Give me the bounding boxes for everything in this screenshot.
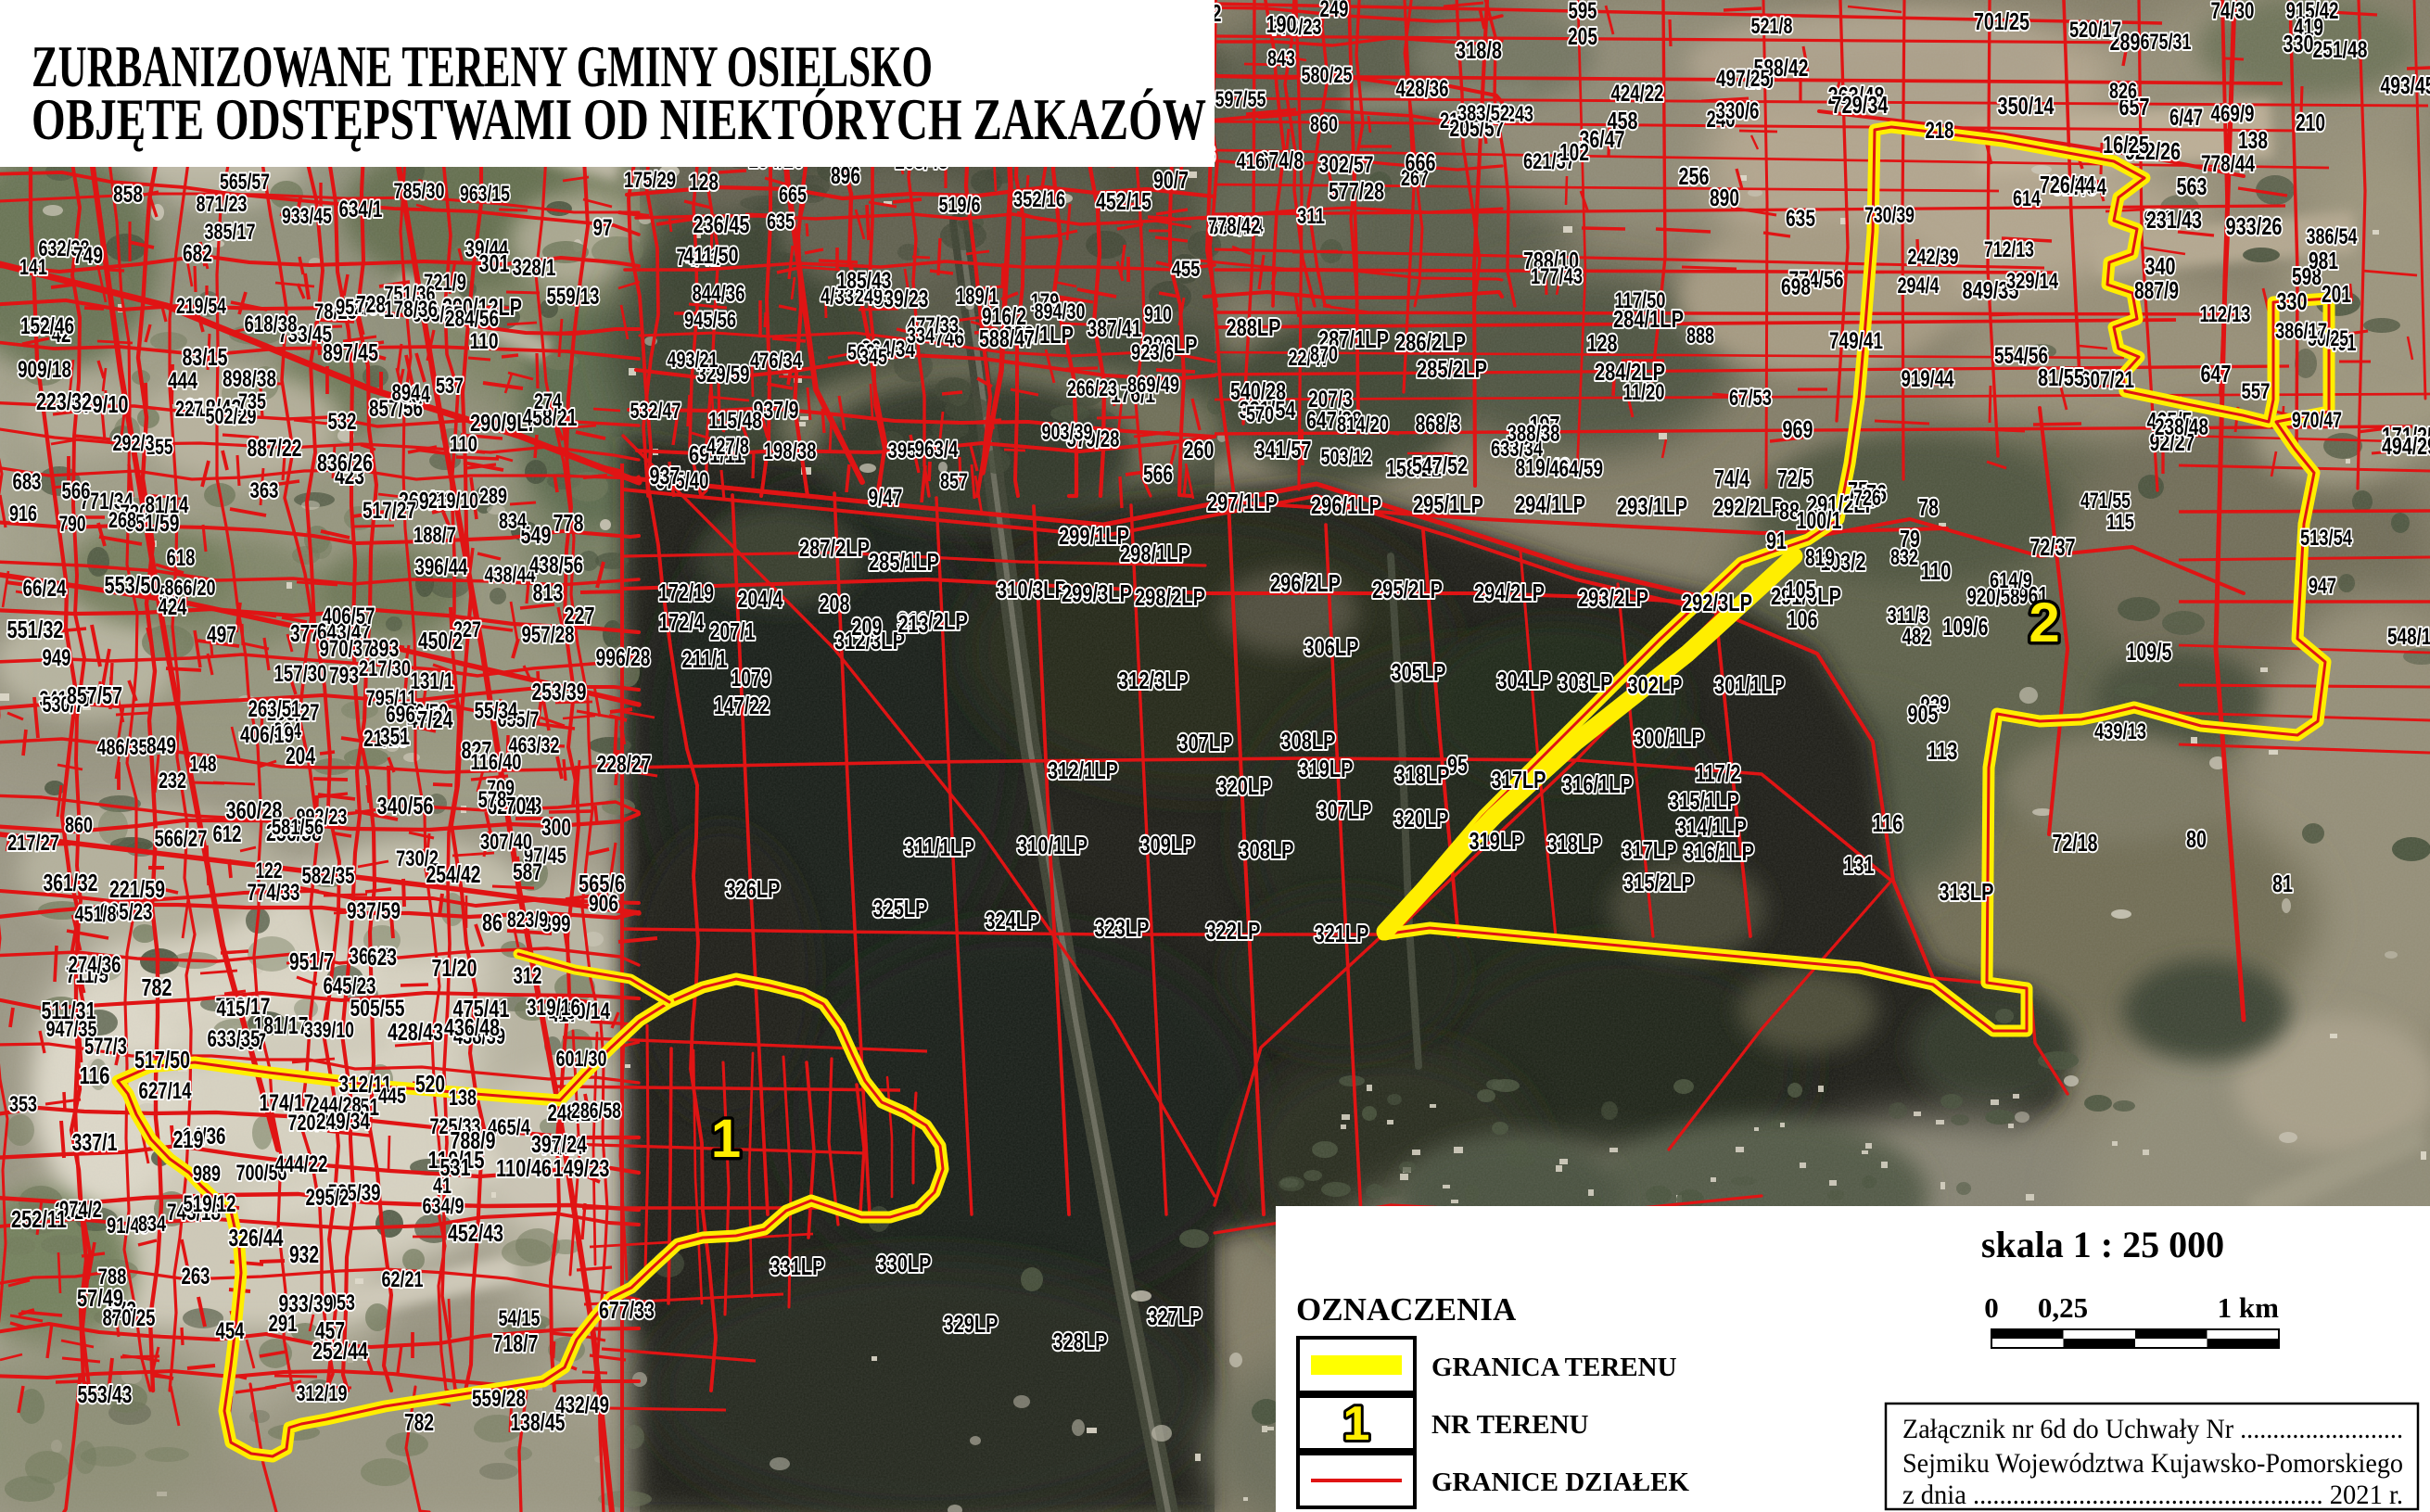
svg-text:565/6: 565/6: [579, 870, 625, 897]
svg-text:NR TERENU: NR TERENU: [1431, 1410, 1589, 1440]
svg-text:301: 301: [479, 249, 510, 277]
svg-text:718/7: 718/7: [493, 1329, 539, 1357]
svg-text:288LP: 288LP: [1227, 313, 1281, 341]
svg-text:557: 557: [2242, 379, 2271, 404]
svg-text:227: 227: [565, 602, 595, 629]
svg-text:1: 1: [711, 1109, 741, 1169]
svg-text:266/23: 266/23: [1067, 376, 1117, 401]
svg-text:97: 97: [593, 215, 613, 241]
svg-text:826: 826: [2109, 79, 2137, 104]
svg-text:128: 128: [689, 170, 719, 196]
svg-text:311/3: 311/3: [1888, 604, 1929, 629]
svg-text:647: 647: [2201, 360, 2232, 388]
svg-text:232: 232: [159, 769, 186, 794]
svg-text:340/56: 340/56: [377, 792, 434, 820]
svg-text:213: 213: [898, 610, 929, 638]
svg-text:618: 618: [167, 545, 196, 571]
svg-text:318LP: 318LP: [1395, 761, 1450, 789]
svg-text:188/7: 188/7: [413, 523, 456, 548]
svg-text:388/38: 388/38: [1508, 421, 1560, 447]
svg-text:311: 311: [1297, 204, 1325, 229]
svg-text:231/43: 231/43: [2146, 206, 2202, 234]
svg-text:819: 819: [1805, 543, 1835, 571]
svg-text:451/8: 451/8: [75, 902, 117, 927]
svg-text:778/44: 778/44: [2201, 151, 2255, 177]
svg-text:251/48: 251/48: [2313, 37, 2368, 63]
svg-text:289: 289: [479, 484, 507, 509]
svg-text:919/44: 919/44: [1902, 366, 1954, 392]
svg-text:305LP: 305LP: [1392, 658, 1446, 686]
svg-text:377: 377: [290, 619, 320, 647]
svg-text:726: 726: [1853, 486, 1881, 511]
svg-text:712/13: 712/13: [1984, 237, 2034, 262]
svg-text:115: 115: [2106, 510, 2134, 535]
svg-text:254/42: 254/42: [426, 860, 481, 888]
svg-text:860: 860: [1310, 112, 1338, 137]
svg-text:351: 351: [380, 722, 410, 750]
svg-text:704: 704: [506, 792, 537, 820]
svg-text:223/32: 223/32: [36, 388, 92, 415]
svg-text:217/27: 217/27: [7, 831, 59, 856]
svg-text:310/3LP: 310/3LP: [997, 576, 1067, 604]
svg-text:198/38: 198/38: [764, 438, 817, 464]
svg-text:0,25: 0,25: [2038, 1291, 2088, 1324]
svg-text:521/8: 521/8: [1751, 14, 1793, 39]
svg-text:291: 291: [269, 1311, 298, 1337]
svg-text:253/39: 253/39: [532, 678, 587, 705]
svg-text:476/34: 476/34: [750, 349, 802, 374]
svg-text:458: 458: [1608, 107, 1638, 134]
svg-text:105: 105: [1786, 576, 1816, 604]
svg-text:190: 190: [1266, 10, 1297, 38]
svg-text:260: 260: [1184, 436, 1215, 464]
svg-text:383/52: 383/52: [1457, 101, 1509, 126]
svg-text:813: 813: [533, 578, 564, 606]
svg-text:210: 210: [2296, 108, 2325, 136]
svg-text:6/47: 6/47: [2169, 105, 2203, 131]
svg-text:386/17: 386/17: [2275, 319, 2327, 344]
svg-text:312: 312: [514, 963, 542, 989]
svg-text:869/49: 869/49: [1127, 373, 1179, 398]
svg-text:110: 110: [450, 432, 477, 457]
svg-text:438/56: 438/56: [529, 553, 583, 578]
svg-text:428/36: 428/36: [1396, 76, 1449, 102]
svg-text:627/14: 627/14: [139, 1078, 192, 1104]
svg-text:157/30: 157/30: [274, 661, 327, 687]
svg-text:857/57: 857/57: [67, 681, 122, 709]
svg-text:566: 566: [62, 478, 91, 504]
svg-text:315/1LP: 315/1LP: [1669, 787, 1739, 815]
svg-text:319/16: 319/16: [527, 995, 580, 1021]
svg-text:201: 201: [2322, 280, 2351, 308]
svg-text:2: 2: [2029, 591, 2059, 654]
svg-text:67/53: 67/53: [1729, 386, 1772, 411]
svg-text:452/15: 452/15: [1096, 187, 1151, 215]
svg-text:497/25: 497/25: [1716, 66, 1770, 92]
svg-text:581/56: 581/56: [272, 815, 324, 840]
svg-text:Załącznik nr 6d do Uchwały Nr: Załącznik nr 6d do Uchwały Nr ..........…: [1902, 1414, 2403, 1444]
svg-text:493/45: 493/45: [2381, 71, 2430, 99]
svg-text:307LP: 307LP: [1178, 729, 1233, 756]
svg-text:832: 832: [1890, 545, 1918, 570]
svg-text:350/14: 350/14: [1998, 92, 2055, 120]
svg-text:860: 860: [65, 813, 93, 838]
svg-text:330/6: 330/6: [1716, 98, 1760, 124]
svg-text:406/19: 406/19: [240, 722, 294, 748]
svg-text:293/2LP: 293/2LP: [1578, 584, 1648, 612]
svg-text:551/32: 551/32: [7, 616, 64, 643]
svg-text:517/50: 517/50: [134, 1046, 190, 1074]
svg-text:910: 910: [1144, 302, 1172, 327]
svg-text:559/13: 559/13: [547, 284, 600, 310]
svg-text:324LP: 324LP: [986, 907, 1040, 934]
svg-text:857: 857: [940, 469, 968, 494]
svg-text:933/26: 933/26: [2226, 212, 2283, 240]
svg-text:78: 78: [1918, 493, 1939, 521]
svg-text:185/43: 185/43: [837, 268, 892, 294]
svg-text:352/16: 352/16: [1013, 187, 1065, 212]
svg-text:701/25: 701/25: [1974, 7, 2029, 35]
svg-text:286/58: 286/58: [571, 1099, 621, 1124]
svg-text:316/1LP: 316/1LP: [1684, 838, 1754, 866]
svg-text:312/3LP: 312/3LP: [1118, 667, 1189, 694]
svg-text:138: 138: [2238, 126, 2268, 154]
svg-text:293/1LP: 293/1LP: [1617, 492, 1687, 520]
svg-text:310/1LP: 310/1LP: [1017, 832, 1088, 859]
svg-text:497: 497: [207, 622, 236, 648]
svg-text:597/55: 597/55: [1215, 87, 1266, 112]
svg-text:311/1LP: 311/1LP: [904, 833, 974, 861]
svg-text:444/22: 444/22: [275, 1151, 328, 1177]
svg-text:730/39: 730/39: [1864, 203, 1915, 228]
svg-text:411/50: 411/50: [684, 243, 739, 269]
svg-text:909/18: 909/18: [18, 357, 71, 383]
svg-text:698: 698: [1781, 274, 1811, 300]
svg-text:115/48: 115/48: [708, 408, 762, 434]
svg-text:128: 128: [1587, 329, 1618, 357]
svg-text:175/29: 175/29: [624, 168, 676, 193]
svg-text:323LP: 323LP: [1095, 914, 1150, 942]
svg-text:318LP: 318LP: [1547, 830, 1602, 858]
svg-text:298/1LP: 298/1LP: [1120, 540, 1190, 567]
svg-text:295/2LP: 295/2LP: [1372, 576, 1443, 604]
svg-text:62/21: 62/21: [382, 1267, 424, 1292]
svg-text:674/8: 674/8: [1259, 146, 1304, 174]
svg-text:131: 131: [1844, 851, 1875, 879]
svg-text:221/59: 221/59: [109, 875, 165, 903]
svg-text:937: 937: [650, 462, 681, 489]
svg-text:548/12: 548/12: [2387, 624, 2430, 650]
svg-text:945/56: 945/56: [684, 308, 736, 333]
svg-text:319LP: 319LP: [1469, 827, 1524, 855]
svg-text:566/27: 566/27: [155, 826, 208, 852]
svg-text:464/59: 464/59: [1549, 456, 1603, 482]
svg-text:141: 141: [19, 255, 47, 280]
svg-text:1079: 1079: [732, 664, 771, 692]
svg-text:GRANICE DZIAŁEK: GRANICE DZIAŁEK: [1431, 1468, 1689, 1497]
svg-text:439/13: 439/13: [2094, 719, 2146, 744]
svg-text:868/3: 868/3: [1416, 410, 1461, 438]
svg-text:11/20: 11/20: [1623, 380, 1665, 405]
svg-text:932: 932: [289, 1240, 319, 1268]
svg-text:209: 209: [852, 613, 883, 641]
svg-text:415: 415: [217, 997, 246, 1022]
svg-text:55/34: 55/34: [475, 698, 518, 724]
svg-text:890: 890: [1710, 184, 1739, 211]
svg-text:329/14: 329/14: [2006, 269, 2058, 294]
svg-text:749: 749: [73, 243, 103, 269]
svg-text:836/26: 836/26: [317, 449, 373, 476]
svg-text:361/32: 361/32: [44, 869, 98, 896]
svg-text:227: 227: [175, 397, 203, 422]
svg-text:963/4: 963/4: [915, 437, 959, 463]
svg-text:320LP: 320LP: [1394, 805, 1449, 832]
svg-text:406/57: 406/57: [323, 604, 375, 629]
svg-text:110: 110: [470, 329, 499, 354]
svg-text:316/1LP: 316/1LP: [1562, 770, 1633, 798]
svg-text:331LP: 331LP: [770, 1252, 825, 1280]
svg-text:511/31: 511/31: [42, 997, 96, 1024]
svg-text:81: 81: [2272, 870, 2293, 897]
svg-text:308LP: 308LP: [1281, 727, 1336, 755]
svg-text:334: 334: [907, 324, 935, 349]
svg-text:274/36: 274/36: [69, 952, 121, 978]
svg-text:292/2LP: 292/2LP: [1713, 493, 1784, 521]
svg-text:309LP: 309LP: [1140, 831, 1195, 858]
svg-text:299/3LP: 299/3LP: [1062, 579, 1132, 607]
svg-text:578: 578: [478, 787, 507, 813]
svg-text:300: 300: [541, 813, 571, 841]
svg-text:843: 843: [1267, 46, 1295, 71]
svg-text:916: 916: [9, 502, 37, 527]
svg-text:256: 256: [1679, 162, 1710, 190]
svg-text:726/44: 726/44: [2040, 171, 2095, 198]
svg-text:387/41: 387/41: [1088, 314, 1142, 342]
svg-text:452/43: 452/43: [448, 1219, 503, 1247]
svg-text:887/9: 887/9: [2134, 276, 2179, 304]
svg-text:238/48: 238/48: [2155, 414, 2208, 440]
svg-text:532/47: 532/47: [630, 399, 681, 424]
svg-text:177/43: 177/43: [1531, 264, 1583, 289]
svg-text:219: 219: [173, 1125, 204, 1153]
svg-text:450/2: 450/2: [418, 627, 463, 654]
svg-text:326LP: 326LP: [726, 875, 781, 903]
svg-text:308LP: 308LP: [1240, 836, 1294, 864]
svg-text:785/30: 785/30: [394, 179, 445, 204]
svg-text:138: 138: [449, 1086, 477, 1111]
svg-text:GRANICA TERENU: GRANICA TERENU: [1431, 1353, 1677, 1382]
svg-text:559/28: 559/28: [472, 1386, 526, 1412]
svg-text:969: 969: [1783, 415, 1813, 443]
svg-text:318/8: 318/8: [1456, 36, 1502, 64]
svg-text:635: 635: [767, 210, 795, 235]
svg-text:951/7: 951/7: [289, 947, 334, 975]
svg-text:520/17: 520/17: [2069, 18, 2121, 43]
svg-text:327LP: 327LP: [1148, 1302, 1202, 1330]
svg-text:292/3LP: 292/3LP: [1682, 589, 1752, 616]
svg-text:322LP: 322LP: [1206, 917, 1261, 945]
svg-text:345: 345: [859, 345, 887, 370]
svg-text:71/20: 71/20: [432, 954, 477, 982]
svg-text:996/28: 996/28: [596, 643, 651, 671]
svg-text:337/1: 337/1: [72, 1128, 118, 1156]
svg-text:553/50: 553/50: [105, 571, 161, 599]
svg-text:788/9: 788/9: [451, 1126, 496, 1154]
svg-text:116: 116: [1873, 809, 1903, 837]
svg-text:455: 455: [1172, 257, 1201, 282]
svg-text:416: 416: [1237, 149, 1266, 174]
svg-text:970/47: 970/47: [2292, 408, 2342, 433]
svg-text:204/4: 204/4: [738, 585, 783, 613]
svg-text:858: 858: [113, 182, 143, 208]
svg-text:683: 683: [13, 469, 42, 495]
svg-text:219/10: 219/10: [428, 489, 478, 514]
svg-text:268: 268: [108, 508, 136, 533]
svg-text:782: 782: [404, 1408, 434, 1436]
svg-text:341/57: 341/57: [1255, 436, 1312, 464]
svg-text:469/9: 469/9: [2211, 101, 2255, 127]
svg-text:319LP: 319LP: [1299, 755, 1354, 782]
svg-text:312/19: 312/19: [297, 1381, 348, 1406]
svg-text:302/57: 302/57: [1319, 152, 1374, 178]
svg-text:207/3: 207/3: [1308, 387, 1353, 413]
svg-text:330: 330: [2284, 30, 2314, 57]
svg-text:284/56: 284/56: [445, 306, 499, 332]
svg-text:313LP: 313LP: [1940, 878, 1994, 906]
svg-text:242/39: 242/39: [1908, 245, 1959, 270]
svg-text:339/10: 339/10: [304, 1018, 354, 1043]
svg-text:298/2LP: 298/2LP: [1135, 583, 1205, 611]
svg-text:218: 218: [1926, 118, 1954, 144]
svg-text:577/28: 577/28: [1329, 177, 1384, 205]
svg-text:86: 86: [482, 908, 503, 936]
svg-text:174/17: 174/17: [260, 1090, 314, 1116]
svg-text:432/49: 432/49: [555, 1392, 609, 1418]
svg-text:OZNACZENIA: OZNACZENIA: [1296, 1291, 1517, 1328]
svg-text:444: 444: [168, 368, 197, 394]
svg-text:981: 981: [2309, 247, 2338, 274]
svg-text:729/34: 729/34: [1832, 91, 1889, 119]
svg-text:566: 566: [1143, 460, 1173, 488]
svg-text:513/54: 513/54: [2300, 526, 2352, 551]
svg-text:871/23: 871/23: [197, 192, 248, 217]
svg-text:340: 340: [2145, 252, 2176, 280]
svg-text:519/6: 519/6: [939, 193, 981, 218]
svg-text:749/41: 749/41: [1829, 328, 1883, 354]
svg-text:505/55: 505/55: [350, 996, 405, 1022]
svg-text:565/57: 565/57: [220, 170, 270, 195]
svg-text:OBJĘTE ODSTĘPSTWAMI OD NIEKTÓR: OBJĘTE ODSTĘPSTWAMI OD NIEKTÓRYCH ZAKAZÓ…: [32, 87, 1206, 152]
svg-text:317LP: 317LP: [1622, 836, 1677, 864]
svg-text:782: 782: [142, 973, 172, 1001]
svg-text:385/17: 385/17: [205, 220, 256, 245]
svg-text:287/2LP: 287/2LP: [799, 534, 870, 562]
svg-text:116/40: 116/40: [471, 750, 522, 775]
svg-text:635: 635: [1786, 206, 1815, 232]
svg-text:634/1: 634/1: [339, 197, 383, 222]
svg-text:894/30: 894/30: [1035, 299, 1086, 324]
svg-text:870: 870: [1310, 342, 1338, 367]
svg-text:790: 790: [59, 512, 86, 537]
svg-text:314/1LP: 314/1LP: [1676, 813, 1747, 841]
svg-text:503/12: 503/12: [1321, 445, 1372, 470]
svg-text:299/1LP: 299/1LP: [1059, 522, 1129, 550]
svg-text:396/44: 396/44: [415, 554, 468, 580]
svg-text:989: 989: [193, 1162, 221, 1187]
svg-text:887/22: 887/22: [248, 434, 302, 462]
svg-text:905: 905: [1908, 700, 1939, 728]
svg-text:537: 537: [436, 374, 464, 399]
svg-text:438/44: 438/44: [485, 563, 536, 588]
svg-text:532: 532: [328, 409, 357, 435]
svg-text:870/25: 870/25: [103, 1305, 156, 1331]
svg-text:427/8: 427/8: [706, 434, 749, 460]
svg-text:307LP: 307LP: [1317, 796, 1372, 824]
svg-text:228/27: 228/27: [597, 750, 652, 778]
svg-text:933/45: 933/45: [282, 204, 332, 229]
svg-text:152/46: 152/46: [20, 313, 74, 339]
svg-text:116: 116: [80, 1061, 110, 1089]
svg-text:295/1LP: 295/1LP: [1413, 490, 1483, 518]
svg-text:325LP: 325LP: [873, 895, 928, 922]
svg-text:252/11: 252/11: [11, 1205, 67, 1233]
svg-text:587: 587: [513, 859, 542, 885]
svg-text:95: 95: [1447, 751, 1468, 779]
svg-text:386/54: 386/54: [2307, 224, 2358, 249]
svg-text:445: 445: [378, 1084, 406, 1109]
svg-text:303LP: 303LP: [1559, 668, 1613, 696]
svg-text:243: 243: [1506, 102, 1533, 127]
svg-text:263: 263: [182, 1264, 210, 1290]
svg-text:517/27: 517/27: [363, 498, 416, 524]
svg-text:307/40: 307/40: [480, 830, 532, 855]
svg-text:208: 208: [820, 590, 850, 617]
svg-text:263/51: 263/51: [248, 696, 301, 722]
svg-text:skala 1 : 25 000: skala 1 : 25 000: [1981, 1224, 2224, 1265]
svg-text:16/25: 16/25: [2103, 131, 2149, 159]
svg-text:665: 665: [779, 183, 807, 208]
svg-text:285/1LP: 285/1LP: [869, 548, 939, 576]
svg-text:302LP: 302LP: [1628, 671, 1683, 699]
svg-text:1: 1: [1343, 1397, 1370, 1451]
svg-text:793: 793: [329, 663, 359, 689]
svg-text:436/48: 436/48: [444, 1013, 500, 1041]
svg-text:294/2LP: 294/2LP: [1474, 578, 1545, 606]
svg-text:457: 457: [315, 1316, 345, 1344]
svg-text:612: 612: [213, 821, 242, 847]
svg-text:147/22: 147/22: [714, 692, 770, 719]
svg-text:81/55: 81/55: [2038, 363, 2084, 391]
svg-text:292/3: 292/3: [113, 431, 155, 456]
svg-text:178/36: 178/36: [384, 297, 438, 323]
svg-text:675/31: 675/31: [2141, 30, 2192, 55]
svg-text:117/50: 117/50: [1615, 288, 1666, 313]
svg-text:428/43: 428/43: [388, 1018, 443, 1046]
svg-text:217/30: 217/30: [359, 656, 411, 681]
svg-text:109/5: 109/5: [2127, 638, 2172, 666]
svg-text:947: 947: [2309, 574, 2336, 599]
svg-text:306LP: 306LP: [1304, 633, 1359, 661]
svg-text:236/45: 236/45: [693, 210, 750, 238]
svg-text:424/22: 424/22: [1611, 81, 1664, 107]
svg-text:888: 888: [1686, 324, 1714, 349]
svg-text:91: 91: [1766, 527, 1787, 554]
svg-text:294/1LP: 294/1LP: [1515, 490, 1585, 518]
svg-text:520: 520: [415, 1070, 445, 1098]
svg-text:547/52: 547/52: [1412, 451, 1468, 479]
svg-text:728: 728: [356, 290, 386, 318]
svg-text:330: 330: [2277, 287, 2308, 315]
